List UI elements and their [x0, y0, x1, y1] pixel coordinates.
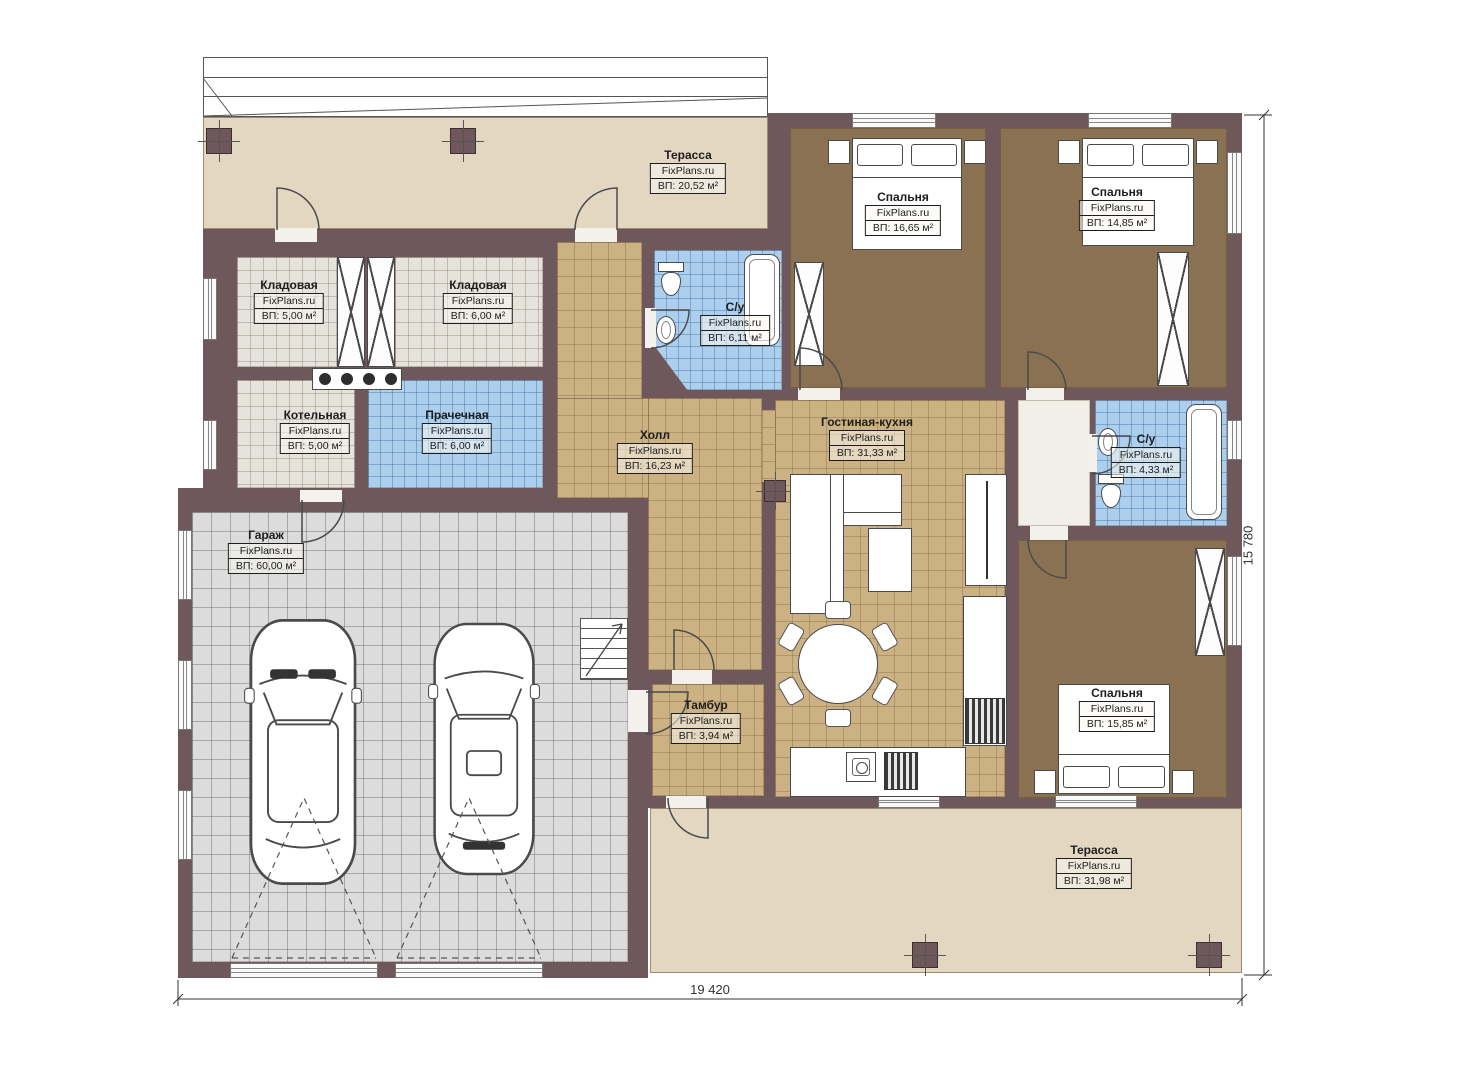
room-label-bathroom-2: С/у FixPlans.ru ВП: 4,33 м² — [1111, 432, 1181, 478]
nightstand — [1058, 140, 1080, 164]
room-info-box: FixPlans.ru ВП: 31,98 м² — [1056, 858, 1132, 889]
dimension-height: 15 780 — [1240, 526, 1255, 566]
window-bedroom-3-right — [1227, 556, 1242, 646]
room-name: Кладовая — [443, 278, 513, 292]
room-area: ВП: 6,00 м² — [423, 439, 491, 453]
window-bedroom-2-top — [1088, 113, 1172, 128]
nightstand — [1172, 770, 1194, 794]
pillow — [911, 144, 956, 166]
room-area: ВП: 60,00 м² — [229, 559, 303, 573]
terrace-column — [912, 942, 938, 968]
floor-plan-canvas: 19 420 15 780 Терасса FixPlans.ru ВП: 20… — [0, 0, 1473, 1080]
room-info-box: FixPlans.ru ВП: 31,33 м² — [829, 430, 905, 461]
dimension-width: 19 420 — [690, 982, 730, 997]
room-info-box: FixPlans.ru ВП: 14,85 м² — [1079, 200, 1155, 231]
room-name: Котельная — [280, 408, 350, 422]
door-opening-entrance — [666, 796, 706, 808]
kitchen-appliance — [965, 698, 1005, 744]
room-name: Кладовая — [254, 278, 324, 292]
floor-hall-living-opening — [762, 410, 775, 482]
watermark: FixPlans.ru — [423, 424, 491, 439]
room-info-box: FixPlans.ru ВП: 6,00 м² — [422, 423, 492, 454]
door-opening-bedroom-1 — [798, 388, 840, 400]
room-info-box: FixPlans.ru ВП: 16,65 м² — [865, 205, 941, 236]
room-label-bedroom-3: Спальня FixPlans.ru ВП: 15,85 м² — [1079, 686, 1155, 732]
room-name: Гараж — [228, 528, 304, 542]
watermark: FixPlans.ru — [1112, 448, 1180, 463]
room-area: ВП: 6,11 м² — [701, 331, 769, 345]
room-name: Холл — [617, 428, 693, 442]
door-opening-terrace-hall — [575, 228, 617, 242]
watermark: FixPlans.ru — [651, 164, 725, 179]
pergola-roof — [203, 57, 768, 117]
wardrobe-bedroom-1 — [794, 262, 824, 366]
watermark: FixPlans.ru — [444, 294, 512, 309]
room-label-laundry: Прачечная FixPlans.ru ВП: 6,00 м² — [422, 408, 492, 454]
room-label-storage-2: Кладовая FixPlans.ru ВП: 6,00 м² — [443, 278, 513, 324]
wardrobe-bedroom-2 — [1157, 252, 1189, 386]
room-name: Гостиная-кухня — [821, 415, 913, 429]
window-bedroom-3-bottom — [1055, 795, 1137, 808]
storage-shelving — [337, 257, 365, 367]
garage-door-2 — [395, 963, 543, 978]
room-label-terrace-bottom: Терасса FixPlans.ru ВП: 31,98 м² — [1056, 843, 1132, 889]
room-info-box: FixPlans.ru ВП: 4,33 м² — [1111, 447, 1181, 478]
room-label-terrace-top: Терасса FixPlans.ru ВП: 20,52 м² — [650, 148, 726, 194]
dining-table — [798, 624, 878, 704]
room-label-bedroom-2: Спальня FixPlans.ru ВП: 14,85 м² — [1079, 185, 1155, 231]
room-area: ВП: 31,33 м² — [830, 446, 904, 460]
door-opening-bathroom-2 — [1087, 434, 1097, 472]
window-bathroom-2 — [1227, 420, 1242, 460]
terrace-column — [1196, 942, 1222, 968]
window-boiler — [203, 420, 217, 470]
window-bedroom-1 — [852, 113, 936, 128]
watermark: FixPlans.ru — [1057, 859, 1131, 874]
pillow — [1118, 766, 1164, 788]
nightstand — [828, 140, 850, 164]
room-info-box: FixPlans.ru ВП: 60,00 м² — [228, 543, 304, 574]
room-name: Терасса — [1056, 843, 1132, 857]
burner — [385, 373, 397, 385]
door-opening-vestibule-hall — [672, 670, 712, 684]
kitchen-counter-bottom — [790, 747, 966, 797]
watermark: FixPlans.ru — [701, 316, 769, 331]
room-info-box: FixPlans.ru ВП: 5,00 м² — [280, 423, 350, 454]
window-storage-1 — [203, 278, 217, 340]
window-garage-left-3 — [178, 790, 192, 860]
room-label-bedroom-1: Спальня FixPlans.ru ВП: 16,65 м² — [865, 190, 941, 236]
wardrobe-bedroom-3 — [1195, 548, 1225, 656]
watermark: FixPlans.ru — [281, 424, 349, 439]
sofa-chaise — [790, 474, 844, 614]
room-label-garage: Гараж FixPlans.ru ВП: 60,00 м² — [228, 528, 304, 574]
room-info-box: FixPlans.ru ВП: 16,23 м² — [617, 443, 693, 474]
room-name: Спальня — [865, 190, 941, 204]
watermark: FixPlans.ru — [866, 206, 940, 221]
room-name: С/у — [700, 300, 770, 314]
burner — [341, 373, 353, 385]
terrace-column — [450, 128, 476, 154]
room-area: ВП: 16,23 м² — [618, 459, 692, 473]
room-area: ВП: 5,00 м² — [281, 439, 349, 453]
burner — [319, 373, 331, 385]
room-area: ВП: 3,94 м² — [672, 729, 740, 743]
room-label-boiler-room: Котельная FixPlans.ru ВП: 5,00 м² — [280, 408, 350, 454]
room-area: ВП: 31,98 м² — [1057, 874, 1131, 888]
room-area: ВП: 4,33 м² — [1112, 463, 1180, 477]
chair — [825, 601, 851, 619]
watermark: FixPlans.ru — [830, 431, 904, 446]
window-garage-left-1 — [178, 530, 192, 600]
room-info-box: FixPlans.ru ВП: 6,00 м² — [443, 293, 513, 324]
room-label-hall: Холл FixPlans.ru ВП: 16,23 м² — [617, 428, 693, 474]
room-name: Тамбур — [671, 698, 741, 712]
room-area: ВП: 14,85 м² — [1080, 216, 1154, 230]
door-opening-garage-vestibule — [628, 690, 648, 732]
watermark: FixPlans.ru — [255, 294, 323, 309]
watermark: FixPlans.ru — [672, 714, 740, 729]
room-label-living-kitchen: Гостиная-кухня FixPlans.ru ВП: 31,33 м² — [821, 415, 913, 461]
room-name: Прачечная — [422, 408, 492, 422]
room-area: ВП: 20,52 м² — [651, 179, 725, 193]
room-label-vestibule: Тамбур FixPlans.ru ВП: 3,94 м² — [671, 698, 741, 744]
watermark: FixPlans.ru — [1080, 702, 1154, 717]
door-opening-terrace-storage — [275, 228, 317, 242]
room-info-box: FixPlans.ru ВП: 5,00 м² — [254, 293, 324, 324]
room-info-box: FixPlans.ru ВП: 3,94 м² — [671, 713, 741, 744]
room-name: С/у — [1111, 432, 1181, 446]
pillow — [1063, 766, 1109, 788]
floor-lobby — [1018, 400, 1090, 526]
nightstand — [1196, 140, 1218, 164]
door-opening-bedroom-3 — [1030, 526, 1068, 540]
burner — [363, 373, 375, 385]
room-label-storage-1: Кладовая FixPlans.ru ВП: 5,00 м² — [254, 278, 324, 324]
toilet-tank — [658, 262, 684, 272]
door-opening-bathroom-1 — [645, 308, 656, 348]
nightstand — [1034, 770, 1056, 794]
room-area: ВП: 5,00 м² — [255, 309, 323, 323]
kitchen-sink — [846, 752, 876, 782]
nightstand — [964, 140, 986, 164]
room-info-box: FixPlans.ru ВП: 20,52 м² — [650, 163, 726, 194]
stairs — [580, 618, 628, 680]
living-corner-column — [764, 480, 786, 502]
room-area: ВП: 16,65 м² — [866, 221, 940, 235]
pillow — [857, 144, 902, 166]
watermark: FixPlans.ru — [229, 544, 303, 559]
window-bedroom-2-right — [1227, 152, 1242, 234]
room-name: Терасса — [650, 148, 726, 162]
storage-shelving — [367, 257, 395, 367]
car-1 — [244, 614, 362, 890]
chair — [825, 709, 851, 727]
pillow — [1142, 144, 1188, 166]
boiler-unit — [312, 368, 402, 390]
car-2 — [428, 618, 540, 880]
room-info-box: FixPlans.ru ВП: 15,85 м² — [1079, 701, 1155, 732]
watermark: FixPlans.ru — [618, 444, 692, 459]
tv-unit — [965, 474, 1007, 586]
terrace-column — [206, 128, 232, 154]
room-name: Спальня — [1079, 686, 1155, 700]
stove — [884, 752, 918, 790]
room-info-box: FixPlans.ru ВП: 6,11 м² — [700, 315, 770, 346]
pillow — [1087, 144, 1133, 166]
room-name: Спальня — [1079, 185, 1155, 199]
garage-door-1 — [230, 963, 378, 978]
sink — [656, 316, 676, 344]
room-area: ВП: 6,00 м² — [444, 309, 512, 323]
coffee-table — [868, 528, 912, 592]
window-garage-left-2 — [178, 660, 192, 730]
room-area: ВП: 15,85 м² — [1080, 717, 1154, 731]
bathtub — [1186, 404, 1222, 520]
room-label-bathroom-1: С/у FixPlans.ru ВП: 6,11 м² — [700, 300, 770, 346]
door-opening-boiler-garage — [300, 490, 342, 502]
floor-terrace-bottom — [650, 808, 1242, 973]
watermark: FixPlans.ru — [1080, 201, 1154, 216]
door-opening-bedroom-2 — [1026, 388, 1064, 400]
